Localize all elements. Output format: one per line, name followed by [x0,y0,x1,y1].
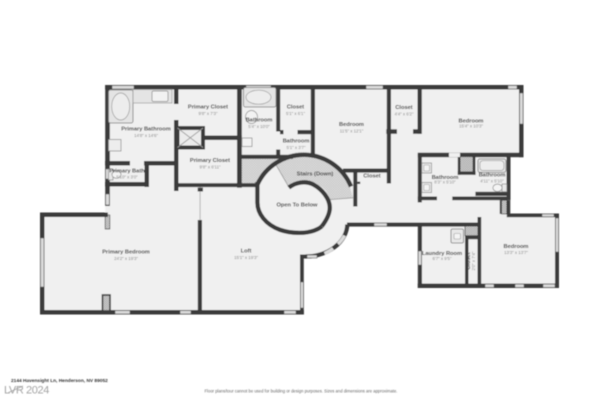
svg-text:8'3" x 5'10": 8'3" x 5'10" [434,179,456,184]
svg-text:Bedroom: Bedroom [339,122,364,128]
svg-text:Primary Closet: Primary Closet [188,105,228,111]
svg-text:Primary Bedroom: Primary Bedroom [102,249,150,255]
svg-text:11'5" x 12'1": 11'5" x 12'1" [340,128,364,133]
svg-text:15'4" x 10'3": 15'4" x 10'3" [459,124,483,129]
svg-text:5'1" x 6'1": 5'1" x 6'1" [286,111,305,116]
svg-text:4'4" x 6'2": 4'4" x 6'2" [395,111,414,116]
svg-text:Loft: Loft [241,249,252,255]
svg-text:Open To Below: Open To Below [277,203,319,209]
svg-text:2144 Havensight Ln, Henderson,: 2144 Havensight Ln, Henderson, NV 89052 [11,378,108,384]
svg-text:2'0" x 7'4": 2'0" x 7'4" [471,251,476,270]
svg-text:6'7" x 9'5": 6'7" x 9'5" [433,256,452,261]
svg-text:Primary Bath: Primary Bath [109,168,145,174]
svg-text:5'1" x 3'7": 5'1" x 3'7" [287,145,306,150]
svg-text:4'11" x 5'10": 4'11" x 5'10" [480,178,504,183]
svg-text:24'2" x 19'3": 24'2" x 19'3" [114,256,138,261]
svg-text:15'1" x 19'3": 15'1" x 19'3" [234,255,258,260]
svg-text:Bathroom: Bathroom [246,118,273,124]
svg-text:14'8" x 14'6": 14'8" x 14'6" [134,133,158,138]
svg-text:Primary Closet: Primary Closet [190,158,230,164]
svg-text:Closet: Closet [363,174,380,180]
svg-text:Floor plans/tour cannot be use: Floor plans/tour cannot be used for buil… [205,388,398,393]
svg-text:13'3" x 13'7": 13'3" x 13'7" [504,250,528,255]
svg-text:Primary Bathroom: Primary Bathroom [121,127,171,133]
svg-text:Bathroom: Bathroom [283,139,310,145]
svg-text:5'10" x 3'0": 5'10" x 3'0" [116,175,138,180]
svg-text:Closet: Closet [287,104,304,110]
svg-text:9'8" x 6'11": 9'8" x 6'11" [199,165,221,170]
svg-text:9'8" x 7'3": 9'8" x 7'3" [199,111,218,116]
svg-text:LVR 2024: LVR 2024 [4,385,49,397]
svg-text:Stairs (Down): Stairs (Down) [297,171,334,177]
svg-text:5'4" x 10'0": 5'4" x 10'0" [248,124,270,129]
svg-text:Closet: Closet [395,105,412,111]
svg-text:Bedroom: Bedroom [504,244,529,250]
